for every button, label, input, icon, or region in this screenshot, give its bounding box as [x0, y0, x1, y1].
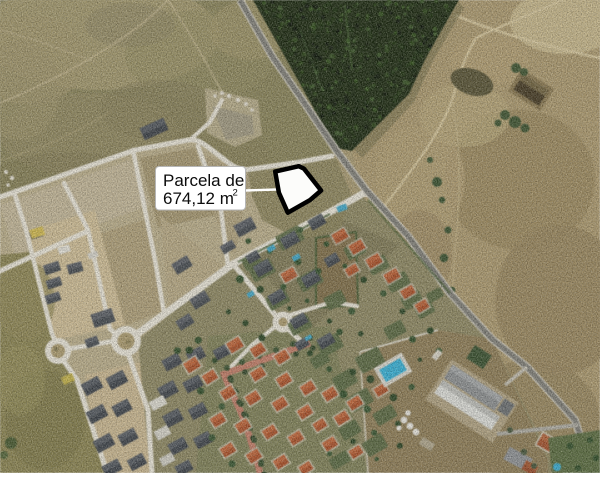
- svg-text:674,12 m: 674,12 m: [163, 189, 234, 208]
- svg-text:2: 2: [233, 188, 238, 199]
